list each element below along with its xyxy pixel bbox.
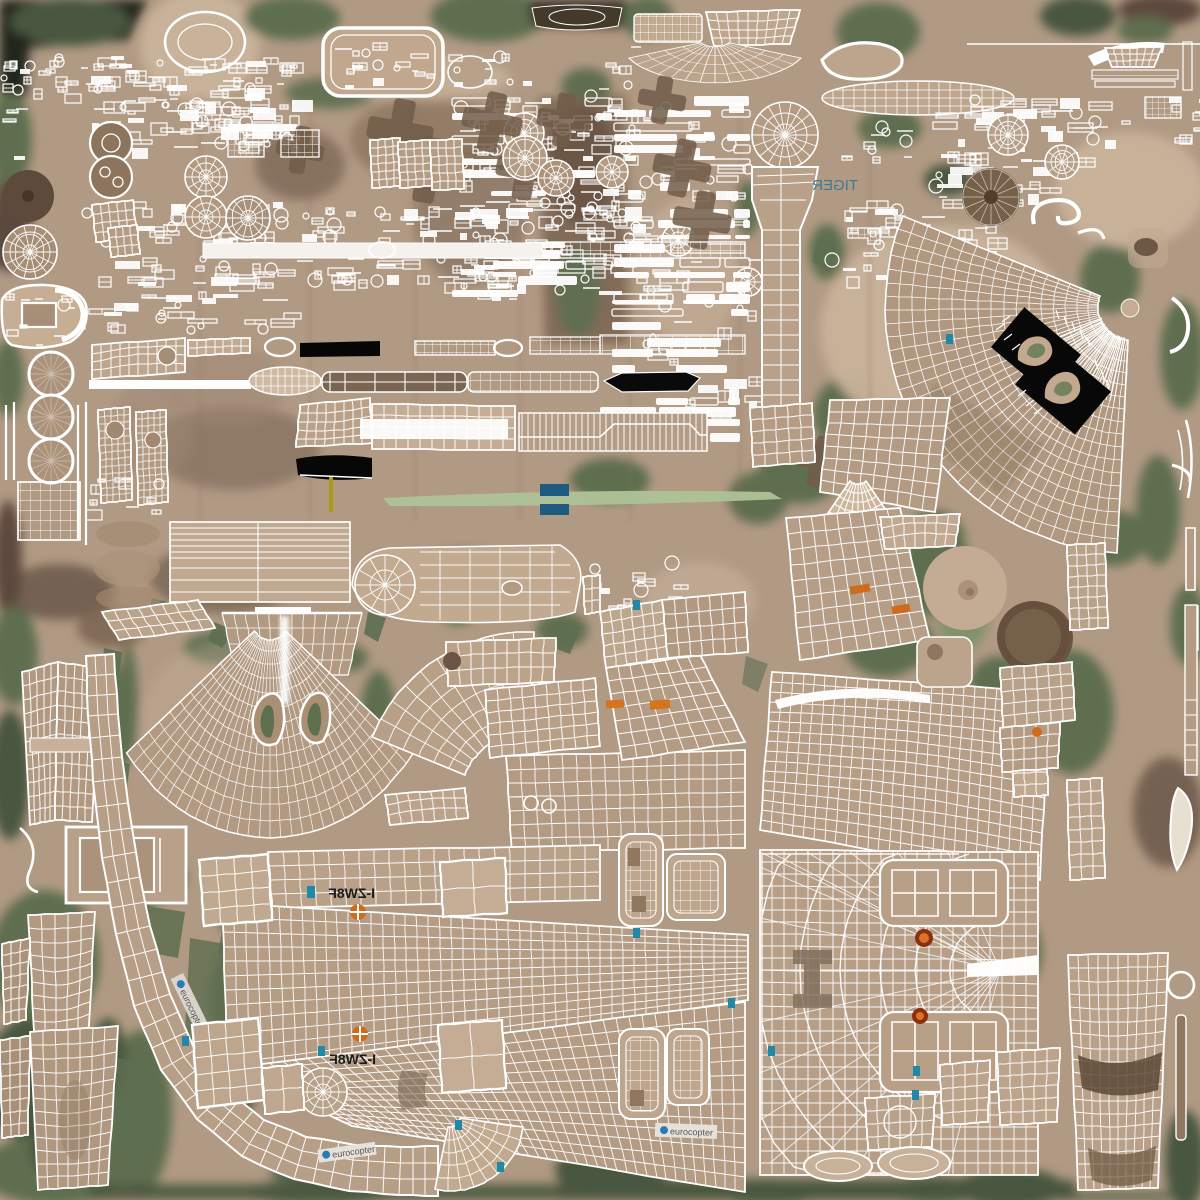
svg-text:I-ZW8F: I-ZW8F (329, 1051, 376, 1067)
svg-text:TIGER: TIGER (812, 177, 858, 194)
svg-text:eurocopter: eurocopter (670, 1126, 713, 1137)
svg-text:I-ZW8F: I-ZW8F (328, 885, 375, 901)
